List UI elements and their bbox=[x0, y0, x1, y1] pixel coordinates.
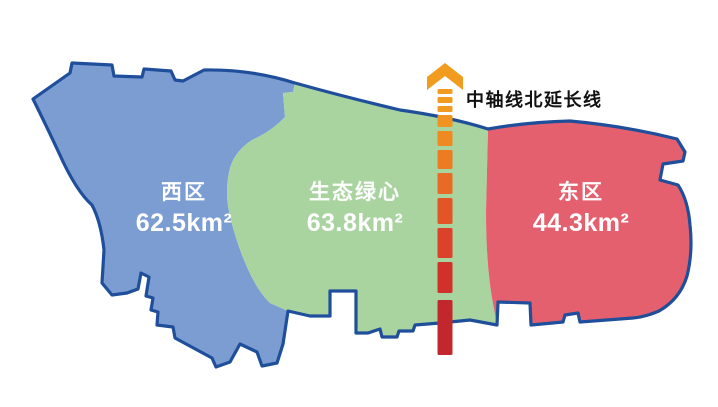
axis-dash bbox=[438, 173, 453, 194]
axis-dash bbox=[438, 150, 453, 169]
district-map-canvas: 西区 62.5km² 生态绿心 63.8km² 东区 44.3km² 中轴线北延… bbox=[0, 0, 718, 407]
axis-up-arrow-icon bbox=[427, 63, 463, 90]
axis-dash bbox=[438, 106, 453, 112]
axis-dash bbox=[438, 300, 453, 355]
region-east-shape bbox=[486, 121, 691, 325]
axis-dash bbox=[438, 262, 453, 293]
axis-label: 中轴线北延长线 bbox=[466, 86, 603, 112]
axis-dash bbox=[438, 198, 453, 224]
axis-dash bbox=[438, 115, 453, 127]
axis-dash bbox=[438, 89, 453, 94]
axis-dash bbox=[438, 131, 453, 146]
axis-dash bbox=[438, 97, 453, 103]
axis-dash bbox=[438, 228, 453, 258]
districts-map bbox=[0, 0, 718, 407]
